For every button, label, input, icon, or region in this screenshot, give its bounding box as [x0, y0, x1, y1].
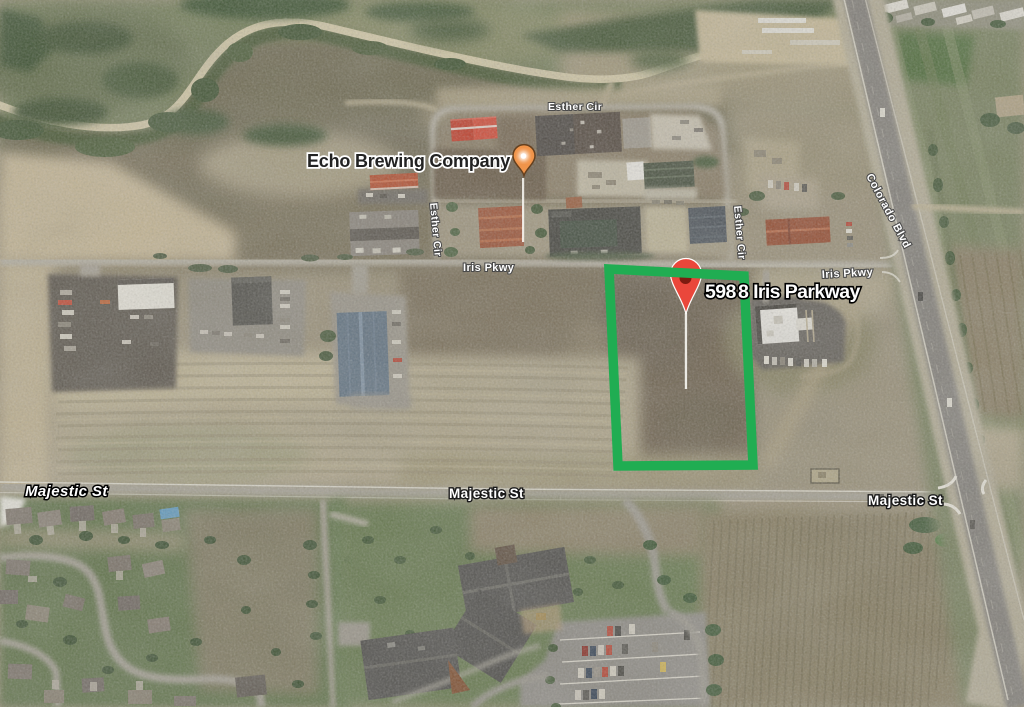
svg-text:Majestic St: Majestic St: [868, 493, 943, 508]
svg-text:598: 598: [705, 281, 736, 303]
svg-text:Echo Brewing Company: Echo Brewing Company: [307, 151, 510, 171]
svg-text:Iris Pkwy: Iris Pkwy: [463, 262, 515, 274]
svg-text:Majestic St: Majestic St: [449, 486, 524, 501]
svg-text:Majestic St: Majestic St: [25, 483, 108, 500]
svg-text:Esther Cir: Esther Cir: [548, 101, 602, 113]
svg-text:8 Iris Parkway: 8 Iris Parkway: [738, 281, 860, 303]
